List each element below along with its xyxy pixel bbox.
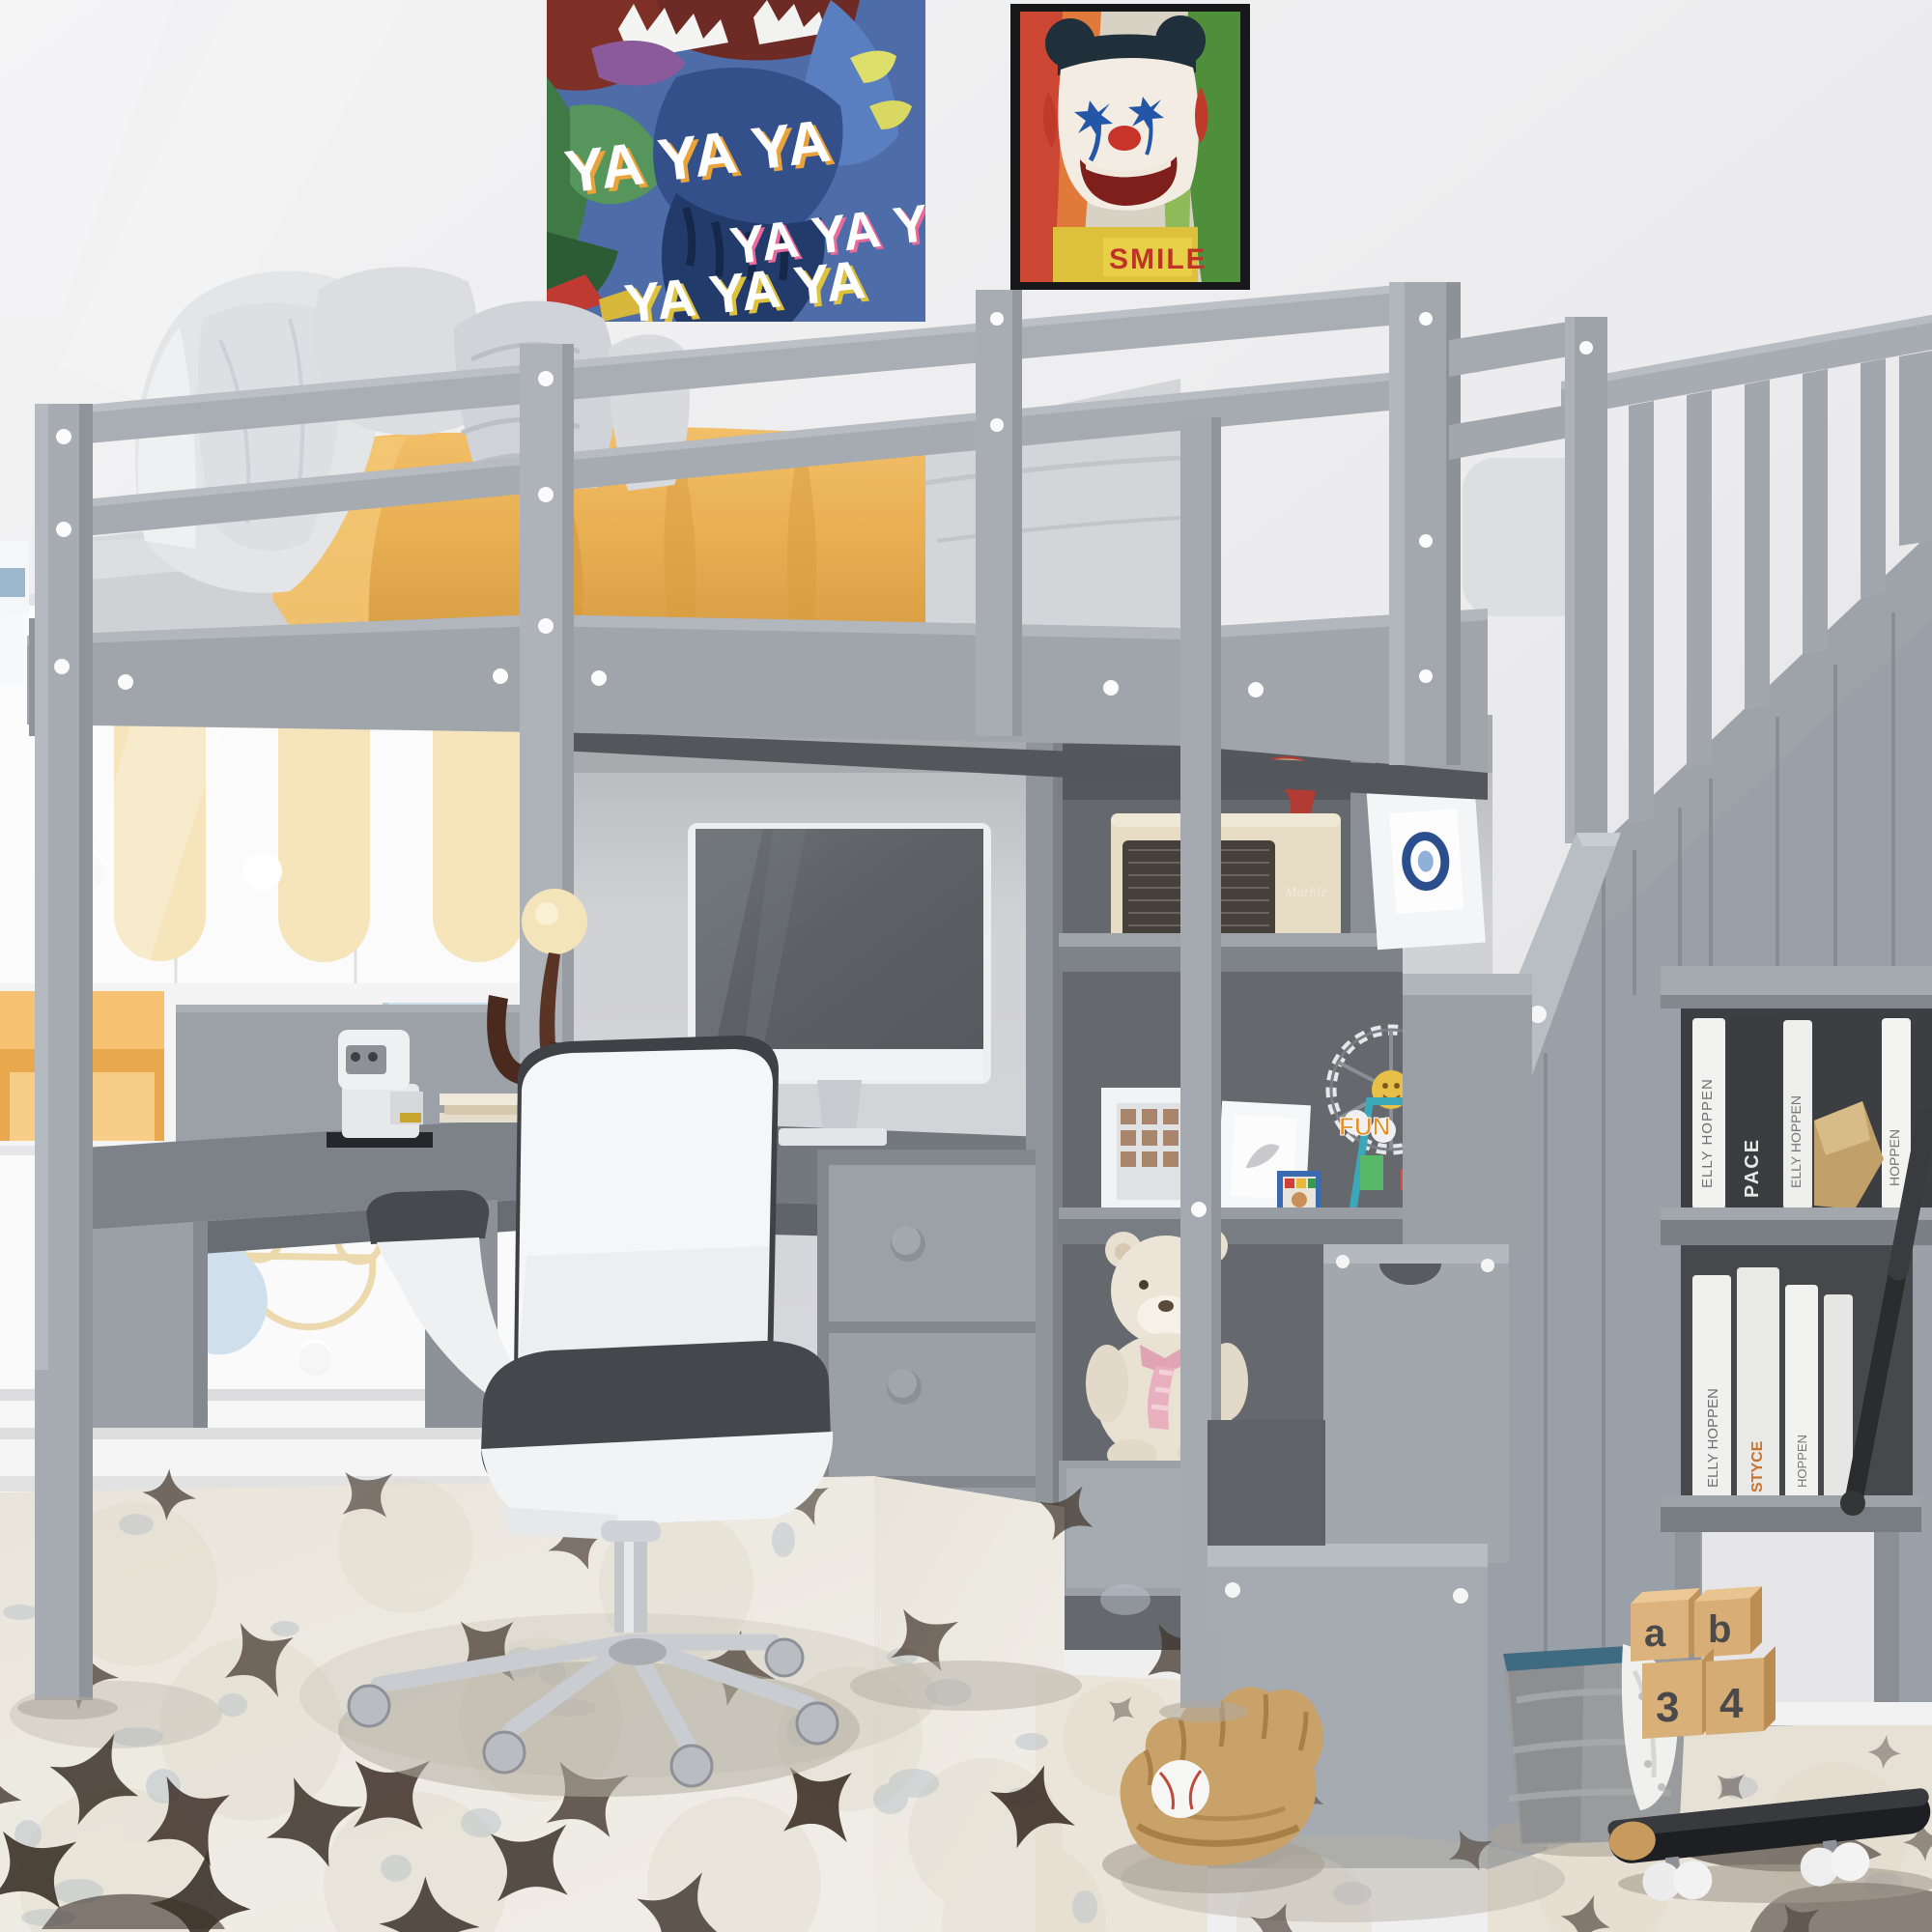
svg-text:4: 4 <box>1719 1680 1744 1727</box>
svg-text:HOPPEN: HOPPEN <box>1795 1435 1809 1488</box>
svg-text:SMILE: SMILE <box>1109 243 1207 275</box>
svg-text:b: b <box>1708 1608 1731 1651</box>
svg-text:ELLY HOPPEN: ELLY HOPPEN <box>1788 1095 1804 1188</box>
svg-text:HOPPEN: HOPPEN <box>1887 1129 1902 1186</box>
svg-text:FUN: FUN <box>1339 1112 1390 1141</box>
svg-text:ELLY HOPPEN: ELLY HOPPEN <box>1705 1388 1721 1488</box>
svg-text:PACE: PACE <box>1742 1138 1763 1198</box>
svg-text:STYCE: STYCE <box>1749 1440 1766 1492</box>
svg-text:a: a <box>1644 1612 1666 1655</box>
svg-text:3: 3 <box>1656 1684 1679 1731</box>
svg-text:ELLY HOPPEN: ELLY HOPPEN <box>1699 1078 1716 1188</box>
svg-text:Marhle: Marhle <box>1284 885 1327 900</box>
